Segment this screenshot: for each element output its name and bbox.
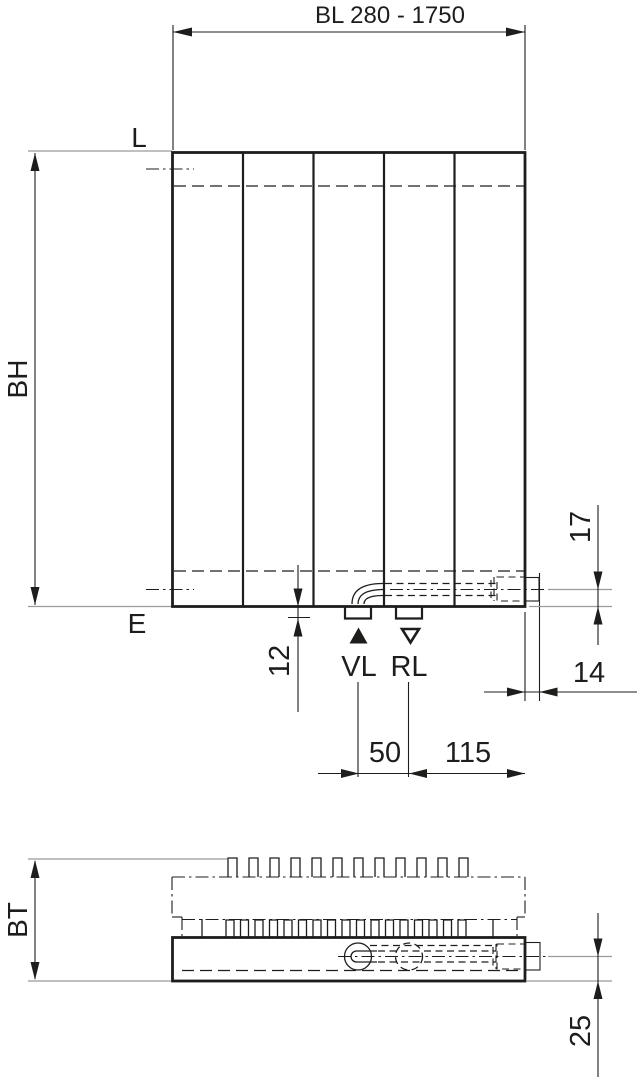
supply-tab — [345, 607, 371, 619]
dim-25: 25 — [526, 913, 612, 1077]
radiator-bottom-view: BT — [2, 858, 612, 1077]
arrowhead-left-icon — [173, 28, 192, 37]
dim-bh: BH — [2, 153, 40, 605]
phantom-outline — [172, 877, 525, 936]
arrowhead-up-icon — [31, 860, 40, 878]
arrowhead-right-icon — [507, 769, 525, 778]
pipe-connections-bottom — [338, 943, 548, 970]
label-e: E — [128, 608, 147, 639]
radiator-bottom-panel — [173, 938, 526, 982]
arrowhead-down-icon — [594, 939, 603, 957]
return-triangle-icon — [402, 629, 419, 643]
dim-label-115: 115 — [445, 737, 491, 769]
dim-label-12: 12 — [264, 645, 296, 677]
dim-label-14: 14 — [573, 657, 605, 689]
dim-label-17: 17 — [565, 511, 597, 543]
radiator-front-view: BL 280 - 1750 L E BH — [2, 2, 637, 778]
dim-label-50: 50 — [369, 737, 401, 769]
label-rl: RL — [390, 651, 427, 683]
arrowhead-up-icon — [594, 607, 603, 625]
arrowhead-right-icon — [507, 688, 525, 697]
supply-triangle-icon — [350, 628, 368, 644]
arrowhead-left-icon — [409, 769, 427, 778]
arrowhead-left-icon — [540, 688, 558, 697]
arrowhead-down-icon — [31, 587, 40, 605]
arrowhead-down-icon — [594, 572, 603, 590]
dim-14: 14 — [484, 573, 637, 701]
dim-bl: BL 280 - 1750 — [173, 2, 525, 150]
arrowhead-down-icon — [31, 962, 40, 980]
arrowhead-up-icon — [594, 981, 603, 999]
dim-12: 12 — [264, 565, 310, 712]
dim-label-bt: BT — [2, 902, 33, 938]
dim-label-bl: BL 280 - 1750 — [315, 2, 465, 29]
dim-50-115: 50 115 — [318, 682, 525, 778]
return-tab — [396, 607, 422, 619]
pipe-arc — [364, 596, 383, 605]
radiator-dimension-drawing: BL 280 - 1750 L E BH — [0, 0, 638, 1080]
label-l: L — [131, 122, 147, 153]
dim-label-25: 25 — [565, 1015, 597, 1047]
arrowhead-right-icon — [341, 769, 359, 778]
arrowhead-right-icon — [506, 28, 525, 37]
label-vl: VL — [341, 651, 376, 683]
arrowhead-up-icon — [31, 153, 40, 171]
pipe-arc — [352, 584, 383, 605]
dim-17: 17 — [529, 505, 612, 645]
convector-fins-front — [226, 920, 466, 938]
dim-label-bh: BH — [2, 360, 33, 399]
convector-fins-rear — [228, 858, 468, 877]
arrowhead-down-icon — [294, 589, 303, 607]
arrowhead-up-icon — [294, 619, 303, 637]
radiator-front-outline — [173, 153, 526, 607]
